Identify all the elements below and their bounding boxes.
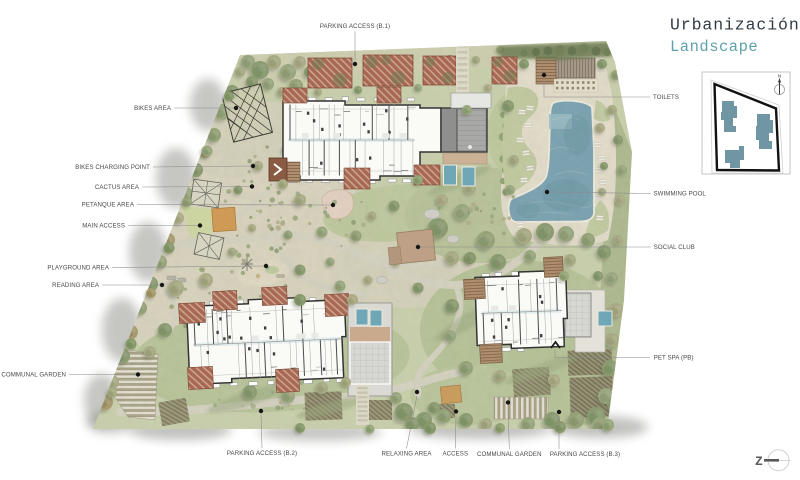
svg-text:TOILETS: TOILETS — [653, 94, 679, 101]
svg-text:PLAYGROUND AREA: PLAYGROUND AREA — [47, 265, 109, 272]
svg-text:Landscape: Landscape — [670, 38, 758, 56]
svg-text:PARKING ACCESS (B.1): PARKING ACCESS (B.1) — [320, 23, 390, 30]
svg-text:PET SPA (PB): PET SPA (PB) — [654, 355, 694, 362]
svg-text:PARKING ACCESS (B.2): PARKING ACCESS (B.2) — [227, 450, 297, 457]
svg-text:BIKES AREA: BIKES AREA — [134, 105, 172, 112]
svg-text:PARKING ACCESS (B.3): PARKING ACCESS (B.3) — [550, 451, 620, 458]
svg-text:ACCESS: ACCESS — [442, 451, 468, 458]
svg-text:SOCIAL CLUB: SOCIAL CLUB — [654, 244, 695, 251]
svg-text:CACTUS AREA: CACTUS AREA — [95, 184, 140, 191]
svg-text:BIKES CHARGING POINT: BIKES CHARGING POINT — [75, 164, 150, 171]
svg-text:N: N — [778, 74, 781, 79]
svg-text:Urbanización: Urbanización — [670, 16, 800, 35]
svg-text:Z: Z — [755, 454, 763, 469]
svg-text:PETANQUE AREA: PETANQUE AREA — [82, 202, 135, 209]
svg-text:COMMUNAL GARDEN: COMMUNAL GARDEN — [1, 372, 66, 379]
svg-text:RELAXING AREA: RELAXING AREA — [381, 451, 432, 458]
svg-text:READING AREA: READING AREA — [52, 282, 100, 289]
svg-text:MAIN ACCESS: MAIN ACCESS — [82, 223, 125, 230]
svg-text:SWIMMING POOL: SWIMMING POOL — [654, 191, 707, 198]
svg-text:COMMUNAL GARDEN: COMMUNAL GARDEN — [477, 451, 542, 458]
